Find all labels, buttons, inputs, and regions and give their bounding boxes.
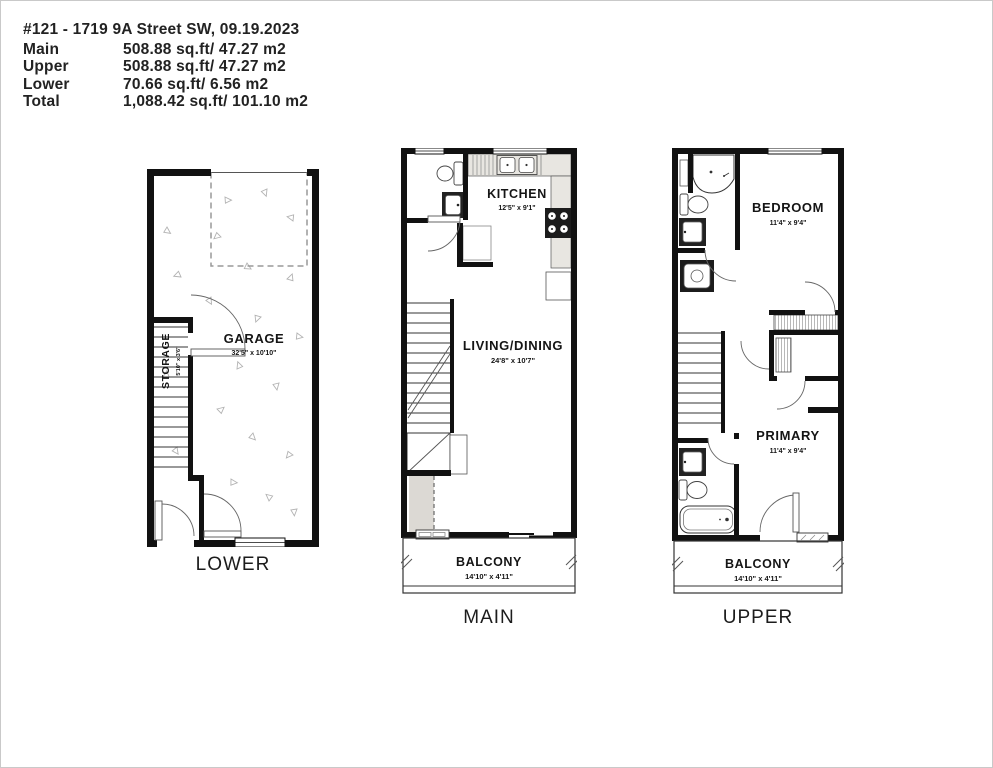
floor-plan-sheet: #121 - 1719 9A Street SW, 09.19.2023 Mai… — [0, 0, 993, 768]
bedroom-door — [805, 282, 835, 312]
shelf — [680, 160, 688, 186]
bedroom-dims: 11'4" x 9'4" — [770, 220, 807, 227]
main-caption: MAIN — [401, 607, 577, 629]
balcony-door-leaf — [793, 493, 799, 532]
entry-closet — [463, 226, 491, 260]
toilet — [679, 480, 707, 500]
living-dining-label: LIVING/DINING — [463, 338, 563, 353]
walls — [147, 169, 319, 547]
stairs — [407, 303, 467, 474]
stove — [545, 208, 571, 238]
ensuite-door — [708, 438, 734, 464]
dashed-overhang-area — [211, 173, 307, 267]
entry-shade — [409, 476, 434, 532]
closet-door — [777, 381, 805, 409]
garage-dims: 32'5" x 10'10" — [231, 350, 276, 357]
garage-label: GARAGE — [224, 331, 285, 346]
area-row-value: 508.88 sq.ft/ 47.27 m2 — [123, 41, 286, 59]
storage-label: STORAGE — [160, 333, 172, 389]
area-row-label: Main — [23, 41, 123, 59]
window — [235, 538, 285, 547]
toilet — [437, 162, 463, 185]
bathtub — [680, 506, 736, 533]
area-row: Total 1,088.42 sq.ft/ 101.10 m2 — [23, 93, 308, 111]
area-row-label: Total — [23, 93, 123, 111]
shower — [693, 155, 734, 193]
main-floor-plan: KITCHEN 12'5" x 9'1" LIVING/DINING 24'8"… — [401, 148, 577, 600]
bathroom-door — [428, 216, 460, 251]
living-dining-dims: 24'8" x 10'7" — [491, 356, 535, 365]
area-row: Main 508.88 sq.ft/ 47.27 m2 — [23, 41, 308, 59]
area-row-label: Lower — [23, 76, 123, 94]
bedroom-label: BEDROOM — [752, 200, 824, 215]
lower-floor-plan: GARAGE 32'5" x 10'10" STORAGE 5'10" x 3'… — [147, 169, 319, 547]
balcony-label: BALCONY — [725, 557, 791, 571]
area-row: Lower 70.66 sq.ft/ 6.56 m2 — [23, 76, 308, 94]
header: #121 - 1719 9A Street SW, 09.19.2023 Mai… — [23, 21, 308, 111]
sliding-window — [509, 534, 553, 537]
hall-closet — [776, 338, 791, 372]
kitchen-label: KITCHEN — [487, 187, 547, 201]
upper-caption: UPPER — [672, 607, 844, 629]
toilet — [680, 194, 708, 215]
bathroom-sink — [679, 448, 706, 476]
area-row-value: 508.88 sq.ft/ 47.27 m2 — [123, 58, 286, 76]
garage-door — [191, 295, 245, 356]
hall-door — [741, 341, 769, 369]
vestibule-door — [204, 494, 241, 537]
storage-dims: 5'10" x 3'6" — [176, 346, 182, 376]
area-row: Upper 508.88 sq.ft/ 47.27 m2 — [23, 58, 308, 76]
primary-label: PRIMARY — [756, 428, 820, 443]
primary-dims: 11'4" x 9'4" — [770, 448, 807, 455]
area-row-value: 70.66 sq.ft/ 6.56 m2 — [123, 76, 268, 94]
bathroom-sink — [442, 192, 464, 218]
balcony-dims: 14'10" x 4'11" — [734, 574, 782, 583]
balcony-label: BALCONY — [456, 555, 522, 569]
entry-door — [155, 501, 194, 540]
area-row-label: Upper — [23, 58, 123, 76]
page-title: #121 - 1719 9A Street SW, 09.19.2023 — [23, 21, 308, 39]
upper-floor-plan: BEDROOM 11'4" x 9'4" PRIMARY 11'4" x 9'4… — [672, 148, 844, 600]
balcony-door-arc — [760, 495, 797, 532]
kitchen-sink — [497, 156, 537, 175]
balcony-dims: 14'10" x 4'11" — [465, 572, 513, 581]
kitchen-dims: 12'5" x 9'1" — [498, 205, 535, 212]
stairs — [678, 333, 721, 423]
lower-caption: LOWER — [147, 554, 319, 576]
area-row-value: 1,088.42 sq.ft/ 101.10 m2 — [123, 93, 308, 111]
bathroom-sink — [679, 218, 706, 246]
bedroom-closet — [774, 315, 838, 330]
